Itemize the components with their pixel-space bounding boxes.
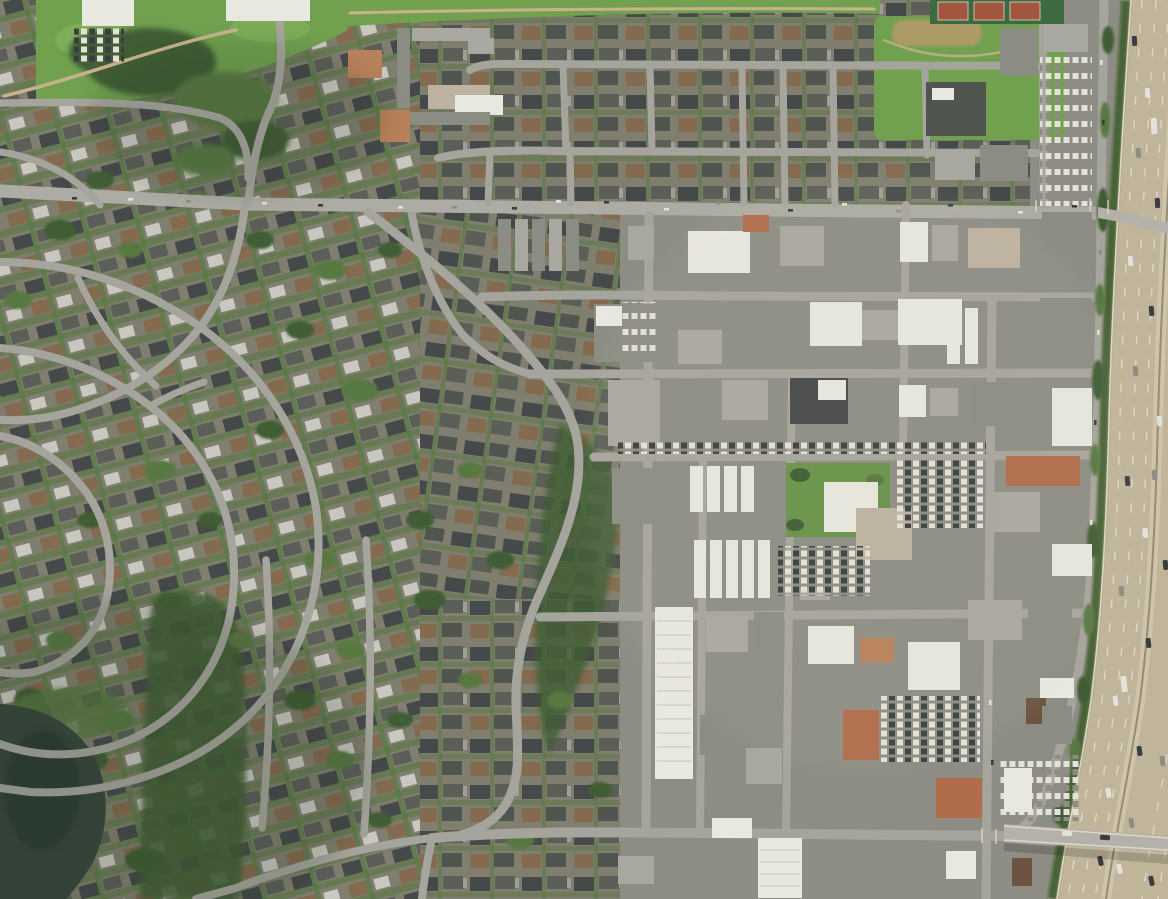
- gas-canopy: [1004, 768, 1032, 812]
- satellite-map-view[interactable]: [0, 0, 1168, 899]
- school-parking: [74, 28, 124, 62]
- tennis-courts: [930, 0, 1064, 24]
- white-row-building: [758, 838, 802, 898]
- aerial-imagery: [0, 0, 1168, 899]
